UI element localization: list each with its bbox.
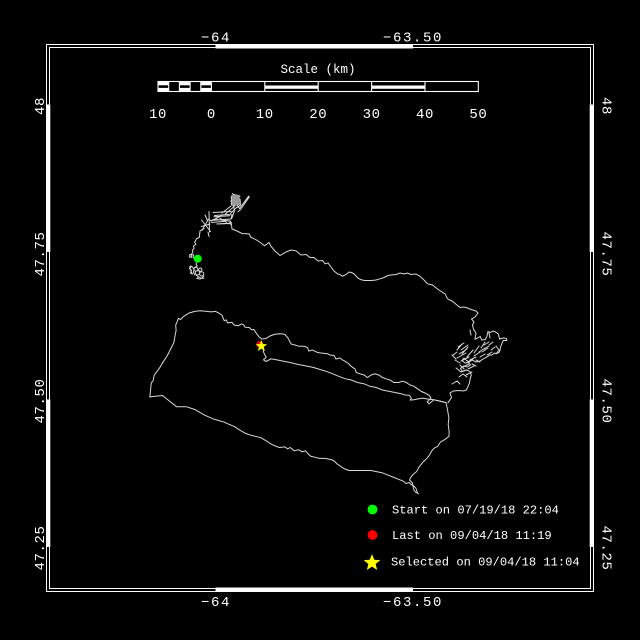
svg-text:Selected on 09/04/18 11:04: Selected on 09/04/18 11:04 (391, 556, 580, 570)
svg-text:50: 50 (469, 107, 487, 123)
svg-text:20: 20 (309, 107, 327, 123)
svg-text:Last on 09/04/18 11:19: Last on 09/04/18 11:19 (392, 529, 552, 543)
svg-text:40: 40 (416, 107, 434, 123)
svg-text:−64: −64 (201, 31, 231, 47)
svg-text:47.75: 47.75 (33, 231, 49, 276)
svg-text:−63.50: −63.50 (383, 595, 443, 611)
svg-text:10: 10 (256, 107, 274, 123)
svg-text:47.50: 47.50 (598, 378, 614, 423)
svg-text:47.50: 47.50 (33, 378, 49, 423)
svg-text:48: 48 (33, 97, 49, 115)
svg-text:−63.50: −63.50 (383, 31, 443, 47)
svg-text:47.75: 47.75 (598, 231, 614, 276)
svg-text:−64: −64 (201, 595, 231, 611)
svg-text:48: 48 (598, 97, 614, 115)
svg-text:47.25: 47.25 (33, 525, 49, 570)
svg-text:47.25: 47.25 (598, 525, 614, 570)
svg-text:10: 10 (149, 107, 167, 123)
svg-text:0: 0 (207, 107, 216, 123)
svg-text:Scale (km): Scale (km) (280, 63, 355, 77)
svg-text:Start on 07/19/18 22:04: Start on 07/19/18 22:04 (392, 504, 559, 518)
svg-text:30: 30 (363, 107, 381, 123)
